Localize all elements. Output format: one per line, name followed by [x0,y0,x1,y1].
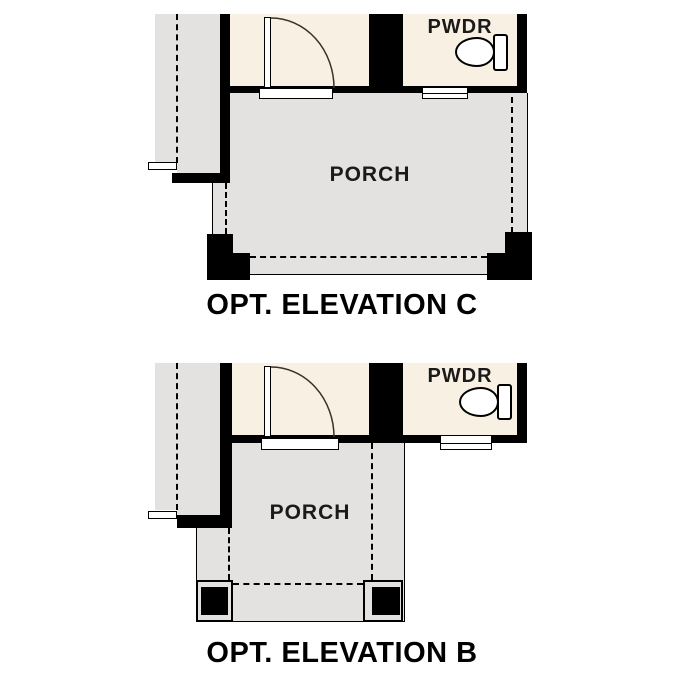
roofline-dashed-bottom [233,583,363,585]
porch-post-left-core [201,587,228,615]
adjacent-structure [155,363,220,510]
plan-elevation-b: PWDR PORCH OPT. ELEVATION B [0,0,687,687]
porch-label: PORCH [240,501,380,525]
wall-vertical-left [220,363,232,528]
window-symbol [440,435,492,450]
window-stub-symbol [148,511,177,519]
wall-vertical-right [517,363,527,443]
window-divider-line [441,443,491,444]
wall-horizontal-left [177,515,232,528]
door-leaf [264,366,271,437]
toilet-icon [459,387,499,417]
door-threshold [261,438,339,450]
adjacent-structure-dashed-line [176,363,178,510]
roofline-dashed-left [228,528,230,580]
wall-pillar [369,363,403,443]
entry-room [232,363,369,435]
porch-post-right-core [372,587,400,615]
toilet-tank-icon [497,384,512,420]
floor-plan-canvas: PWDR PORCH OPT. ELEVATION C [0,0,687,687]
plan-title-elevation-b: OPT. ELEVATION B [92,637,592,670]
